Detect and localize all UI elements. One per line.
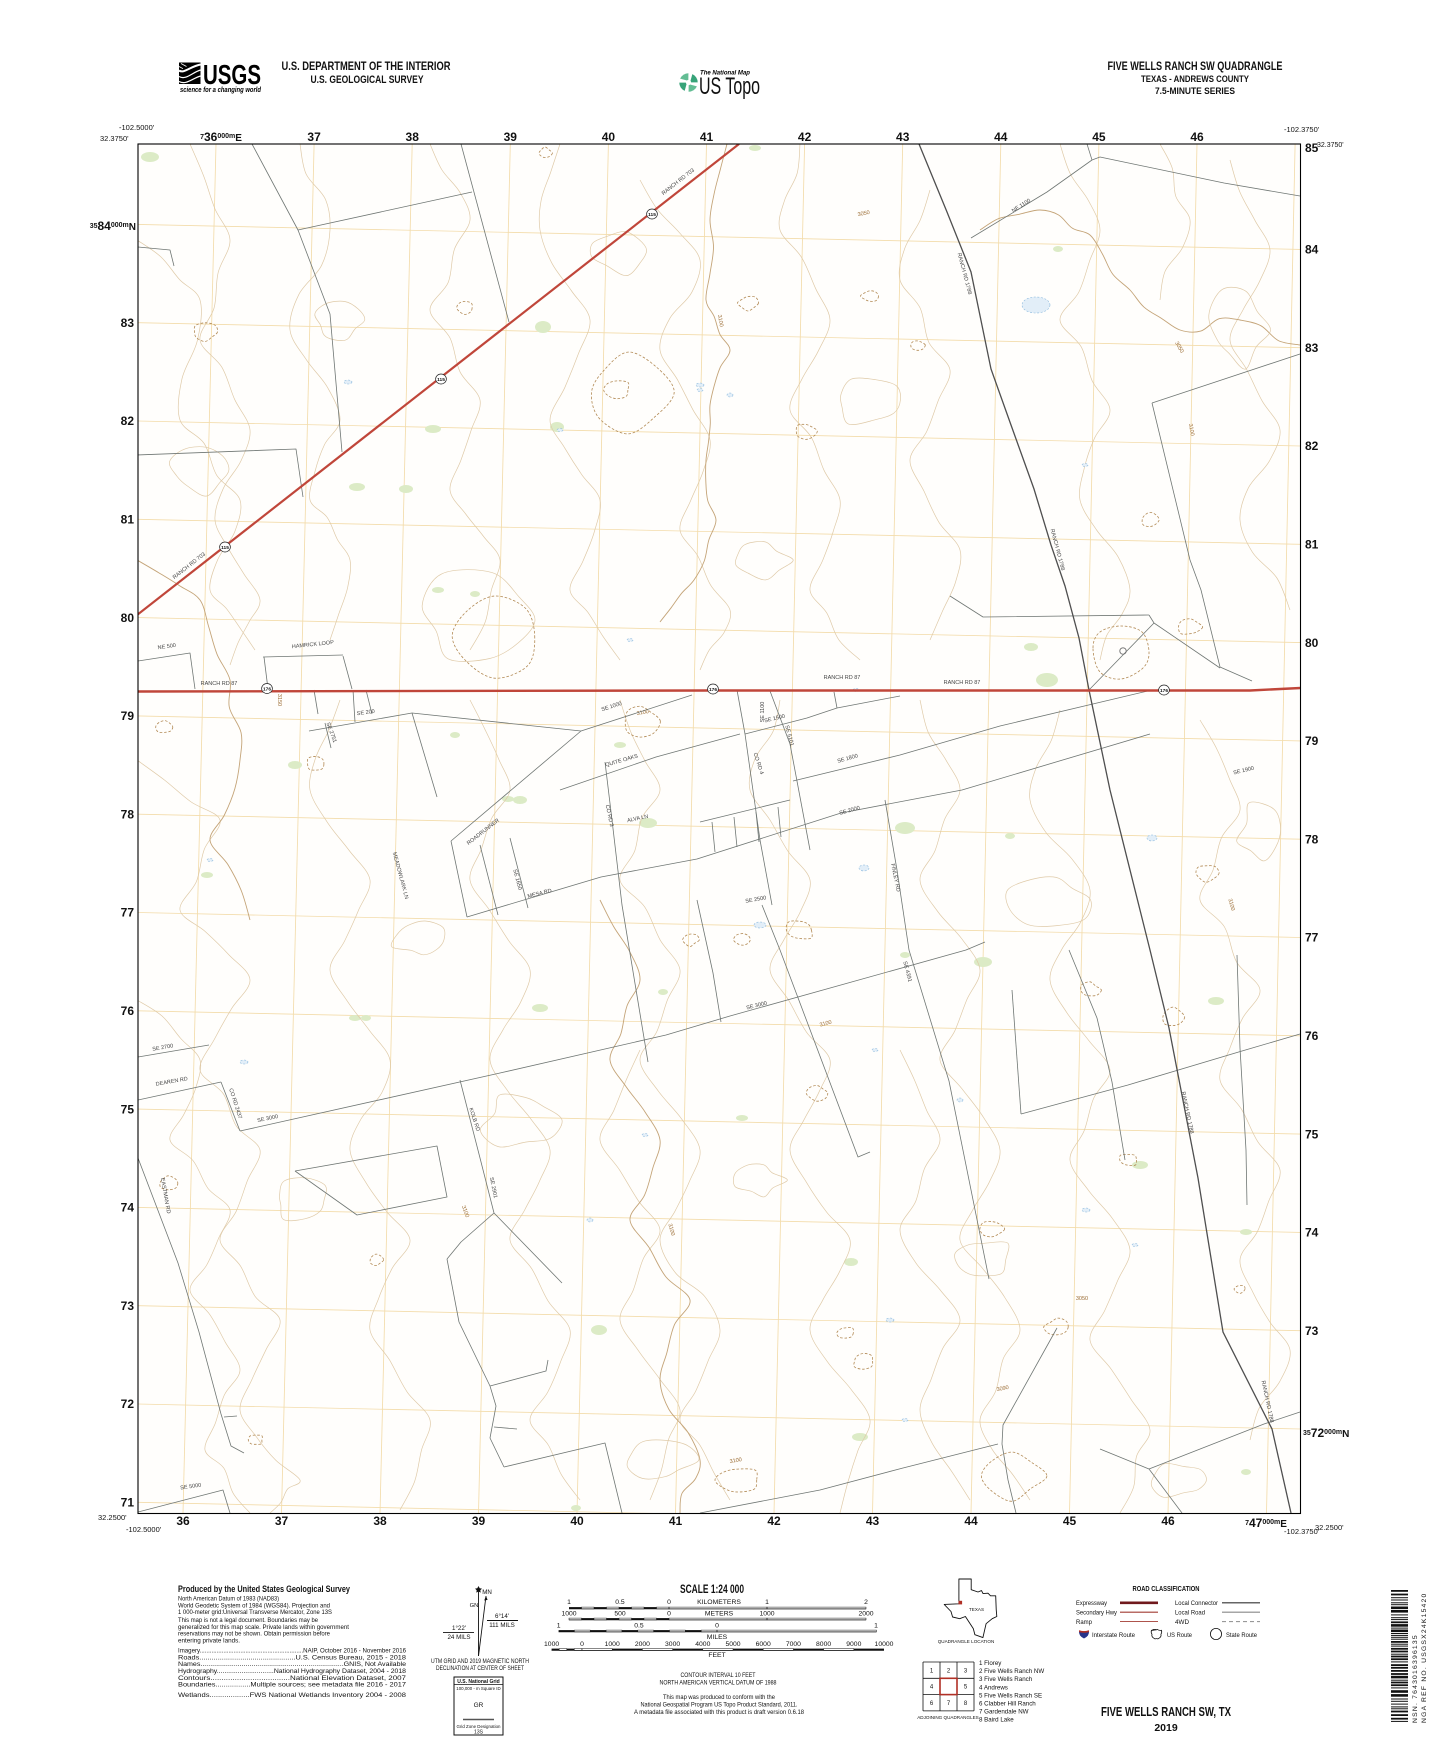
svg-text:Boundaries.................Mul: Boundaries.................Multiple sour… — [178, 1682, 407, 1689]
svg-text:USGS: USGS — [203, 59, 261, 90]
svg-text:science for a changing world: science for a changing world — [180, 87, 262, 94]
svg-text:ROAD CLASSIFICATION: ROAD CLASSIFICATION — [1133, 1584, 1200, 1593]
svg-text:0: 0 — [715, 1622, 719, 1629]
svg-text:80: 80 — [1305, 636, 1319, 650]
svg-text:71: 71 — [121, 1496, 135, 1510]
svg-text:39: 39 — [504, 130, 518, 144]
svg-text:5000: 5000 — [725, 1641, 740, 1648]
svg-text:500: 500 — [614, 1610, 626, 1617]
svg-text:73: 73 — [1305, 1324, 1319, 1338]
svg-text:7.5-MINUTE SERIES: 7.5-MINUTE SERIES — [1155, 86, 1235, 96]
svg-text:3 Five Wells Ranch: 3 Five Wells Ranch — [979, 1676, 1033, 1683]
svg-text:FEET: FEET — [708, 1652, 725, 1659]
svg-text:82: 82 — [1305, 439, 1319, 453]
svg-text:43: 43 — [896, 130, 910, 144]
svg-text:SCALE 1:24 000: SCALE 1:24 000 — [680, 1584, 744, 1596]
svg-text:176: 176 — [709, 687, 717, 693]
svg-text:176: 176 — [263, 686, 271, 692]
svg-text:84: 84 — [1305, 243, 1319, 257]
svg-text:1 Florey: 1 Florey — [979, 1660, 1002, 1667]
svg-text:41: 41 — [669, 1514, 683, 1528]
svg-text:RANCH RD 87: RANCH RD 87 — [944, 680, 981, 686]
svg-text:111 MILS: 111 MILS — [489, 1622, 515, 1629]
svg-text:37: 37 — [307, 130, 321, 144]
svg-text:NORTH AMERICAN VERTICAL DATUM: NORTH AMERICAN VERTICAL DATUM OF 1988 — [660, 1680, 777, 1687]
svg-text:This map was produced to confo: This map was produced to conform with th… — [663, 1694, 775, 1701]
svg-text:Expressway: Expressway — [1076, 1600, 1108, 1607]
svg-text:32.3750': 32.3750' — [1317, 142, 1344, 149]
svg-text:80: 80 — [121, 611, 135, 625]
svg-text:46: 46 — [1161, 1514, 1175, 1528]
svg-text:115: 115 — [648, 212, 656, 218]
svg-text:8000: 8000 — [816, 1641, 831, 1648]
svg-text:74: 74 — [1305, 1226, 1319, 1240]
svg-text:1000: 1000 — [605, 1641, 620, 1648]
svg-text:7000: 7000 — [786, 1641, 801, 1648]
svg-text:0.5: 0.5 — [634, 1622, 644, 1629]
svg-text:US Topo: US Topo — [699, 73, 760, 100]
svg-text:45: 45 — [1092, 130, 1106, 144]
svg-text:6 Clabber Hill Ranch: 6 Clabber Hill Ranch — [979, 1701, 1036, 1708]
svg-text:-102.5000': -102.5000' — [126, 1525, 162, 1534]
svg-text:1: 1 — [874, 1622, 878, 1629]
svg-text:5 Five Wells Ranch SE: 5 Five Wells Ranch SE — [979, 1692, 1042, 1699]
svg-text:83: 83 — [121, 316, 135, 330]
svg-text:45: 45 — [1063, 1514, 1077, 1528]
svg-text:0: 0 — [580, 1641, 584, 1648]
svg-text:NSN. 7643016396135: NSN. 7643016396135 — [1412, 1634, 1419, 1723]
svg-text:79: 79 — [1305, 734, 1319, 748]
svg-text:-102.3750': -102.3750' — [1284, 125, 1320, 134]
svg-text:40: 40 — [570, 1514, 584, 1528]
svg-text:78: 78 — [1305, 832, 1319, 846]
svg-text:ADJOINING QUADRANGLES: ADJOINING QUADRANGLES — [917, 1715, 979, 1720]
svg-text:Local Connector: Local Connector — [1175, 1600, 1218, 1607]
svg-text:37: 37 — [275, 1514, 289, 1528]
svg-text:2000: 2000 — [858, 1610, 873, 1617]
svg-text:46: 46 — [1190, 130, 1204, 144]
svg-text:4 Andrews: 4 Andrews — [979, 1684, 1008, 1691]
svg-text:36: 36 — [176, 1514, 190, 1528]
svg-text:UTM GRID AND 2019 MAGNETIC NOR: UTM GRID AND 2019 MAGNETIC NORTH — [431, 1658, 529, 1665]
svg-text:3000: 3000 — [665, 1641, 680, 1648]
svg-text:6000: 6000 — [756, 1641, 771, 1648]
svg-text:1°22': 1°22' — [452, 1625, 466, 1632]
svg-text:US Route: US Route — [1167, 1632, 1193, 1639]
svg-text:10000: 10000 — [875, 1641, 894, 1648]
svg-text:QUADRANGLE LOCATION: QUADRANGLE LOCATION — [938, 1639, 995, 1644]
svg-text:32.3750': 32.3750' — [100, 134, 129, 143]
svg-text:2 Five Wells Ranch NW: 2 Five Wells Ranch NW — [979, 1668, 1044, 1675]
svg-text:8 Baird Lake: 8 Baird Lake — [979, 1717, 1014, 1724]
svg-text:CONTOUR INTERVAL 10 FEET: CONTOUR INTERVAL 10 FEET — [681, 1672, 756, 1679]
svg-text:2019: 2019 — [1154, 1722, 1178, 1734]
svg-text:TEXAS: TEXAS — [969, 1607, 984, 1612]
svg-text:9000: 9000 — [846, 1641, 861, 1648]
svg-text:176: 176 — [1160, 688, 1168, 694]
svg-text:GN: GN — [470, 1603, 479, 1609]
svg-text:Interstate Route: Interstate Route — [1092, 1632, 1136, 1639]
svg-text:41: 41 — [700, 130, 714, 144]
svg-text:40: 40 — [602, 130, 616, 144]
svg-text:1000: 1000 — [544, 1641, 559, 1648]
svg-text:100,000 - m Square ID: 100,000 - m Square ID — [456, 1686, 500, 1691]
svg-text:1 000-meter grid:Universal Tra: 1 000-meter grid:Universal Transverse Me… — [178, 1609, 332, 1616]
svg-text:-102.5000': -102.5000' — [119, 123, 155, 132]
svg-text:42: 42 — [767, 1514, 781, 1528]
svg-text:39: 39 — [472, 1514, 486, 1528]
svg-text:1000: 1000 — [561, 1610, 576, 1617]
svg-text:73: 73 — [121, 1299, 135, 1313]
svg-text:44: 44 — [994, 130, 1008, 144]
svg-text:TEXAS - ANDREWS COUNTY: TEXAS - ANDREWS COUNTY — [1141, 74, 1249, 84]
svg-text:76: 76 — [121, 1004, 135, 1018]
svg-text:0.5: 0.5 — [615, 1599, 625, 1606]
svg-text:43: 43 — [866, 1514, 880, 1528]
svg-text:RANCH RD 87: RANCH RD 87 — [201, 681, 238, 687]
svg-text:7 Gardendale NW: 7 Gardendale NW — [979, 1709, 1029, 1716]
svg-text:81: 81 — [121, 513, 135, 527]
svg-text:1000: 1000 — [759, 1610, 774, 1617]
svg-text:72: 72 — [121, 1397, 135, 1411]
svg-text:74: 74 — [121, 1201, 135, 1215]
svg-text:77: 77 — [1305, 931, 1319, 945]
svg-text:KILOMETERS: KILOMETERS — [697, 1599, 741, 1606]
svg-text:75: 75 — [1305, 1127, 1319, 1141]
svg-text:3150: 3150 — [276, 694, 282, 706]
svg-text:Wetlands...................FWS: Wetlands...................FWS National … — [178, 1692, 407, 1699]
svg-text:2: 2 — [864, 1599, 868, 1606]
svg-text:SE 1100: SE 1100 — [760, 702, 766, 723]
svg-text:Grid Zone Designation: Grid Zone Designation — [457, 1724, 501, 1729]
svg-text:1: 1 — [765, 1599, 769, 1606]
svg-text:115: 115 — [437, 377, 445, 383]
svg-text:42: 42 — [798, 130, 812, 144]
svg-text:75: 75 — [121, 1102, 135, 1116]
svg-text:Secondary Hwy: Secondary Hwy — [1076, 1609, 1118, 1616]
svg-text:State Route: State Route — [1226, 1632, 1258, 1639]
svg-text:77: 77 — [121, 906, 135, 920]
svg-text:U.S. GEOLOGICAL SURVEY: U.S. GEOLOGICAL SURVEY — [311, 74, 425, 86]
svg-text:entering private lands.: entering private lands. — [178, 1637, 240, 1644]
svg-text:FIVE WELLS RANCH SW, TX: FIVE WELLS RANCH SW, TX — [1101, 1704, 1231, 1719]
svg-text:44: 44 — [964, 1514, 978, 1528]
svg-text:Produced by the United States: Produced by the United States Geological… — [178, 1584, 351, 1595]
svg-text:1: 1 — [557, 1622, 561, 1629]
svg-text:NGA REF NO. USGSX24K15420: NGA REF NO. USGSX24K15420 — [1421, 1593, 1428, 1724]
svg-text:79: 79 — [121, 709, 135, 723]
svg-text:83: 83 — [1305, 341, 1319, 355]
svg-text:FIVE WELLS RANCH SW QUADRANGLE: FIVE WELLS RANCH SW QUADRANGLE — [1108, 59, 1283, 73]
svg-text:3050: 3050 — [1076, 1296, 1088, 1302]
svg-text:U.S. National Grid: U.S. National Grid — [457, 1679, 500, 1685]
svg-text:115: 115 — [221, 545, 229, 551]
svg-text:National Geospatial Program US: National Geospatial Program US Topo Prod… — [641, 1702, 798, 1709]
svg-text:4WD: 4WD — [1175, 1619, 1190, 1626]
svg-text:0: 0 — [667, 1599, 671, 1606]
svg-text:DECLINATION AT CENTER OF SHEET: DECLINATION AT CENTER OF SHEET — [436, 1665, 524, 1672]
svg-text:32.2500': 32.2500' — [98, 1513, 127, 1522]
svg-text:Local Road: Local Road — [1175, 1609, 1206, 1616]
svg-text:GR: GR — [474, 1702, 484, 1709]
svg-text:METERS: METERS — [705, 1610, 734, 1617]
svg-text:A metadata file associated wit: A metadata file associated with this pro… — [634, 1709, 804, 1716]
svg-text:13S: 13S — [474, 1730, 484, 1736]
svg-text:6°14': 6°14' — [495, 1613, 509, 1620]
svg-text:76: 76 — [1305, 1029, 1319, 1043]
svg-text:Ramp: Ramp — [1076, 1619, 1093, 1626]
svg-text:38: 38 — [406, 130, 420, 144]
svg-text:U.S. DEPARTMENT OF THE INTERIO: U.S. DEPARTMENT OF THE INTERIOR — [282, 61, 452, 73]
svg-text:4000: 4000 — [695, 1641, 710, 1648]
svg-text:2000: 2000 — [635, 1641, 650, 1648]
svg-text:MN: MN — [482, 1589, 492, 1596]
svg-text:82: 82 — [121, 414, 135, 428]
svg-text:81: 81 — [1305, 538, 1319, 552]
svg-text:78: 78 — [121, 807, 135, 821]
svg-text:RANCH RD 87: RANCH RD 87 — [824, 675, 861, 681]
svg-text:1: 1 — [567, 1599, 571, 1606]
svg-text:0: 0 — [667, 1610, 671, 1617]
svg-text:32.2500': 32.2500' — [1315, 1523, 1344, 1532]
svg-text:24 MILS: 24 MILS — [447, 1634, 470, 1641]
svg-text:38: 38 — [373, 1514, 387, 1528]
